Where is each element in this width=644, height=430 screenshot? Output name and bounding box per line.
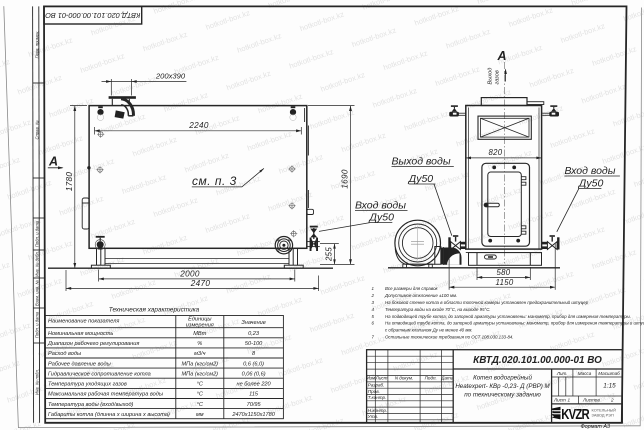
svg-text:Остальные технические требован: Остальные технические требования по ОСТ …	[385, 335, 514, 340]
svg-text:Лист: Лист	[375, 376, 388, 381]
svg-text:1150: 1150	[496, 278, 514, 287]
svg-text:не более 220: не более 220	[237, 382, 272, 388]
svg-text:2240: 2240	[188, 121, 209, 130]
svg-text:255: 255	[325, 247, 334, 262]
svg-text:см. п. 3: см. п. 3	[192, 174, 237, 188]
svg-text:Инв. № дубл.: Инв. № дубл.	[35, 251, 40, 277]
svg-text:по техническому заданию: по техническому заданию	[464, 392, 541, 399]
svg-text:°С: °С	[197, 392, 204, 398]
svg-text:На боковой стенке котла в обла: На боковой стенке котла в области топочн…	[385, 300, 589, 305]
svg-text:2470х1150х1780: 2470х1150х1780	[231, 412, 275, 418]
svg-text:Наименование показателя: Наименование показателя	[48, 318, 119, 324]
svg-text:1: 1	[568, 398, 571, 403]
svg-text:8: 8	[252, 351, 256, 357]
svg-text:2: 2	[610, 398, 614, 403]
svg-text:50-100: 50-100	[245, 341, 263, 347]
svg-text:6: 6	[372, 321, 375, 326]
svg-text:На подводящей трубе котла, до: На подводящей трубе котла, до запорной а…	[385, 314, 631, 319]
svg-text:70/95: 70/95	[247, 402, 262, 408]
svg-text:Подп.: Подп.	[425, 376, 437, 381]
svg-text:Листов: Листов	[582, 398, 600, 403]
svg-text:200х390: 200х390	[155, 72, 186, 81]
svg-text:МВт: МВт	[193, 331, 206, 337]
svg-text:с обратным клапаном Ду не мен: с обратным клапаном Ду не менее 40 мм.	[385, 328, 473, 333]
svg-text:Изм: Изм	[367, 376, 376, 381]
svg-text:Масса: Масса	[578, 371, 592, 376]
svg-text:КВТД.020.101.00.000-01 ВО: КВТД.020.101.00.000-01 ВО	[45, 11, 140, 20]
svg-text:Вход воды: Вход воды	[355, 200, 406, 212]
svg-text:1:15: 1:15	[603, 383, 616, 390]
svg-text:Гидравлическое сопротивление к: Гидравлическое сопротивление котла	[48, 371, 151, 377]
svg-text:KVZR: KVZR	[561, 406, 590, 423]
svg-text:Масштаб: Масштаб	[598, 371, 620, 376]
svg-text:Диапазон рабочего регулировани: Диапазон рабочего регулирования	[47, 341, 139, 347]
svg-text:Heatexpert- КВр -0,23- Д (РВР): Heatexpert- КВр -0,23- Д (РВР) М	[455, 383, 550, 390]
svg-text:Инв. № подл.: Инв. № подл.	[35, 369, 40, 395]
svg-text:Максимальная рабочая температу: Максимальная рабочая температура воды	[48, 392, 163, 398]
svg-text:Лист: Лист	[553, 398, 566, 403]
svg-text:115: 115	[249, 392, 259, 398]
svg-text:Вход воды: Вход воды	[565, 165, 616, 177]
svg-text:2: 2	[371, 293, 375, 298]
svg-text:5: 5	[372, 314, 375, 319]
svg-text:Подп. и дата: Подп. и дата	[35, 311, 40, 338]
svg-text:580: 580	[497, 268, 511, 277]
svg-text:Пров.: Пров.	[368, 389, 380, 394]
svg-text:Утв.: Утв.	[368, 414, 378, 419]
svg-text:N докум.: N докум.	[395, 376, 414, 381]
svg-text:Ду50: Ду50	[369, 212, 395, 224]
svg-text:Все размеры для справок: Все размеры для справок	[385, 286, 439, 291]
svg-text:КВТД.020.101.00.000-01 ВО: КВТД.020.101.00.000-01 ВО	[473, 355, 602, 366]
svg-text:МПа (кгс/см2): МПа (кгс/см2)	[182, 371, 219, 377]
svg-text:°С: °С	[197, 402, 204, 408]
svg-text:Техническая характеристика: Техническая характеристика	[109, 307, 200, 314]
svg-text:4: 4	[372, 307, 375, 312]
svg-text:Н.контр.: Н.контр.	[368, 408, 387, 413]
svg-text:Температура воды на входе 70°: Температура воды на входе 70°С, на выход…	[385, 307, 491, 312]
svg-text:ЗАВОД РЭП: ЗАВОД РЭП	[592, 413, 614, 418]
svg-text:м3/ч: м3/ч	[194, 351, 205, 357]
svg-text:Формат А3: Формат А3	[581, 424, 611, 430]
svg-text:Лит.: Лит.	[556, 371, 568, 376]
svg-text:2000: 2000	[179, 269, 200, 278]
svg-text:Температура уходящих газов: Температура уходящих газов	[48, 382, 127, 388]
svg-text:Расход воды: Расход воды	[48, 351, 81, 357]
svg-text:Рабочее давление воды: Рабочее давление воды	[48, 361, 111, 367]
svg-text:Температура воды (вход/выход): Температура воды (вход/выход)	[48, 402, 134, 408]
svg-text:Перв. примен.: Перв. примен.	[35, 31, 40, 59]
svg-text:Габариты котла (длинна х ширин: Габариты котла (длинна х ширина х высота…	[48, 412, 170, 418]
svg-text:Допустимое отклонение ±100 мм: Допустимое отклонение ±100 мм.	[384, 293, 457, 298]
svg-text:%: %	[197, 341, 202, 347]
svg-text:Подп. и дата: Подп. и дата	[35, 220, 40, 247]
svg-text:1690: 1690	[341, 169, 350, 189]
svg-text:Котел водогрейный: Котел водогрейный	[473, 375, 532, 382]
svg-text:Номинальная мощность: Номинальная мощность	[48, 331, 113, 337]
svg-text:1780: 1780	[65, 172, 74, 192]
svg-text:0,23: 0,23	[248, 331, 260, 337]
svg-text:газов: газов	[495, 70, 501, 84]
svg-text:мм: мм	[196, 412, 204, 418]
svg-text:Выход: Выход	[488, 68, 494, 85]
svg-text:2470: 2470	[190, 279, 211, 288]
svg-text:А: А	[48, 155, 58, 169]
svg-text:На отводящей трубе котла, до з: На отводящей трубе котла, до запорной ар…	[385, 321, 644, 326]
svg-text:1: 1	[372, 286, 375, 291]
svg-text:Ду50: Ду50	[408, 173, 434, 185]
svg-text:820: 820	[489, 148, 503, 157]
svg-text:Разраб.: Разраб.	[368, 383, 385, 388]
svg-text:измерения: измерения	[186, 322, 214, 328]
svg-text:Дата: Дата	[440, 376, 454, 381]
svg-text:°С: °С	[197, 382, 204, 388]
svg-text:3: 3	[372, 300, 375, 305]
svg-text:МПа (кгс/см2): МПа (кгс/см2)	[182, 361, 219, 367]
svg-text:0,6 (6,0): 0,6 (6,0)	[243, 361, 264, 367]
svg-text:Ду50: Ду50	[578, 177, 604, 189]
svg-text:Взам. инв. №: Взам. инв. №	[35, 280, 40, 306]
svg-text:Значение: Значение	[241, 320, 266, 326]
svg-text:Выход воды: Выход воды	[392, 155, 451, 167]
svg-text:7: 7	[372, 335, 375, 340]
svg-text:Справ. №: Справ. №	[35, 120, 40, 139]
svg-text:А: А	[497, 49, 507, 63]
svg-text:Т.контр.: Т.контр.	[368, 395, 387, 400]
svg-text:0,06 (0,6): 0,06 (0,6)	[242, 371, 266, 377]
